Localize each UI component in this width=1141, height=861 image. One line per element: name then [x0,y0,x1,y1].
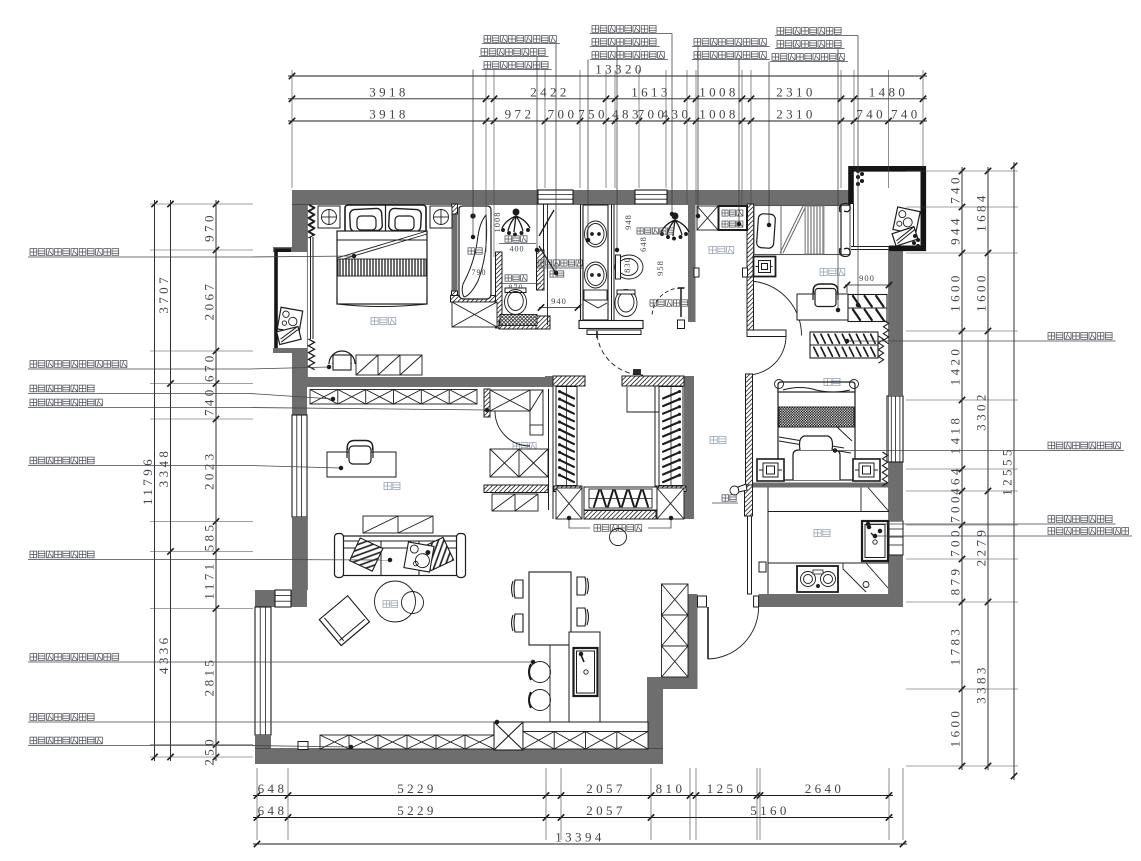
svg-text:250: 250 [202,736,217,766]
svg-text:972: 972 [505,107,535,122]
svg-text:1600: 1600 [948,708,963,748]
svg-text:948: 948 [623,214,633,230]
svg-text:2815: 2815 [202,657,217,697]
svg-text:1008: 1008 [492,212,502,233]
svg-text:3918: 3918 [369,107,409,122]
svg-text:1600: 1600 [948,272,963,312]
svg-text:944: 944 [948,215,963,245]
svg-text:648: 648 [638,236,648,252]
svg-text:3302: 3302 [974,391,989,431]
svg-text:940: 940 [551,296,567,306]
svg-text:2057: 2057 [586,803,626,818]
svg-text:740: 740 [891,107,921,122]
svg-text:810: 810 [656,781,686,796]
svg-text:1420: 1420 [948,346,963,386]
svg-text:2279: 2279 [974,527,989,567]
svg-text:3383: 3383 [974,664,989,704]
svg-text:700: 700 [948,493,963,523]
svg-text:11796: 11796 [140,456,155,505]
svg-text:2640: 2640 [805,781,845,796]
svg-text:830: 830 [622,257,632,273]
svg-text:740: 740 [948,174,963,204]
svg-text:1600: 1600 [974,272,989,312]
svg-text:1250: 1250 [707,781,747,796]
svg-text:13320: 13320 [595,62,645,77]
svg-text:1171: 1171 [202,560,217,599]
svg-text:3918: 3918 [369,84,409,99]
svg-text:3348: 3348 [156,448,171,488]
svg-text:1418: 1418 [948,415,963,455]
svg-text:2023: 2023 [202,450,217,490]
svg-text:5160: 5160 [750,803,790,818]
svg-text:740: 740 [856,107,886,122]
svg-text:13394: 13394 [555,830,605,845]
svg-text:670: 670 [202,352,217,382]
svg-text:1008: 1008 [699,84,739,99]
svg-text:900: 900 [859,273,875,283]
svg-text:790: 790 [472,268,487,277]
svg-text:648: 648 [258,781,288,796]
svg-text:2422: 2422 [530,84,570,99]
svg-text:2310: 2310 [776,107,816,122]
svg-text:740: 740 [202,386,217,416]
svg-text:1783: 1783 [948,626,963,666]
svg-text:700: 700 [548,107,578,122]
svg-text:12555: 12555 [1000,446,1015,496]
svg-text:958: 958 [655,260,665,276]
svg-text:648: 648 [258,803,288,818]
svg-text:5229: 5229 [397,781,437,796]
svg-text:3707: 3707 [156,274,171,314]
svg-text:750: 750 [578,107,608,122]
svg-text:970: 970 [202,212,217,242]
svg-text:464: 464 [948,465,963,495]
svg-text:2310: 2310 [776,84,816,99]
svg-text:700: 700 [948,527,963,557]
svg-text:1008: 1008 [699,107,739,122]
svg-text:1684: 1684 [974,192,989,232]
svg-text:585: 585 [202,522,217,552]
svg-text:1613: 1613 [631,84,671,99]
svg-text:2067: 2067 [202,281,217,321]
svg-text:2057: 2057 [586,781,626,796]
svg-text:400: 400 [510,245,525,254]
svg-text:4336: 4336 [156,634,171,674]
svg-text:879: 879 [948,566,963,596]
svg-text:5229: 5229 [397,803,437,818]
